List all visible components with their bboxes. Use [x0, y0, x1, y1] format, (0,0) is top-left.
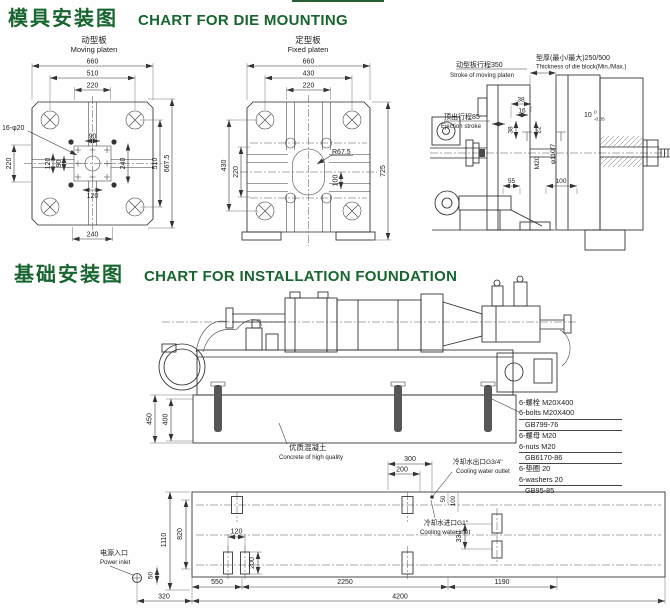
mp-dim-510: 510	[87, 71, 99, 78]
mp-dim-height: 667.5	[164, 155, 171, 173]
pl-dim-100-outlet: 100	[450, 495, 457, 506]
parts-nut-en: 6-nuts M20	[519, 442, 622, 453]
sec-stroke-zh: 动型板行程350	[456, 60, 503, 69]
parts-bolt-std: GB799-76	[519, 420, 622, 431]
mp-dim-510-right: 510	[152, 158, 159, 170]
fp-dim-100: 100	[333, 175, 340, 187]
mp-dim-240-right: 240	[120, 158, 127, 170]
pl-dim-820: 820	[177, 528, 184, 540]
sec-ejection-zh: 顶出行程85	[444, 112, 480, 121]
mp-dim-120-left: 120	[45, 158, 52, 170]
pl-dim-1110: 1110	[161, 533, 168, 548]
anchor-bolts	[211, 382, 495, 432]
concrete-slab	[193, 395, 516, 443]
el-dim-450: 450	[147, 413, 154, 425]
sec-dim-100: 100	[555, 178, 566, 185]
die-mounting-title-en: CHART FOR DIE MOUNTING	[138, 12, 348, 29]
pl-inlet-zh: 冷却水进口G1"	[424, 518, 469, 527]
pl-dim-1190: 1190	[494, 579, 509, 586]
mp-dim-90-center: 90	[89, 134, 97, 141]
anchor-parts-list: 6-螺栓 M20X400 6-bolts M20X400 GB799-76 6-…	[519, 398, 622, 497]
mp-hole-callout: 16-φ20	[2, 125, 25, 132]
parts-washer-zh: 6-垫圈 20	[519, 464, 622, 474]
sec-dim-22: 22	[536, 126, 543, 134]
fixed-platen-label-en: Fixed platen	[263, 46, 353, 55]
sec-dim-10-tol-upper: 0	[594, 110, 597, 115]
sec-dim-55: 55	[508, 178, 516, 185]
pl-dim-200: 200	[249, 557, 256, 569]
fp-dim-430: 430	[303, 71, 315, 78]
pl-power-zh: 电源入口	[100, 548, 128, 557]
sec-ejection-en: Ejection stroke	[441, 123, 482, 130]
pl-dim-550: 550	[211, 579, 223, 586]
fp-dim-220-left: 220	[233, 166, 240, 178]
sec-dim-16: 16	[518, 108, 526, 115]
sec-dim-10: 10	[584, 112, 592, 119]
moving-platen-label-en: Moving platen	[49, 46, 139, 55]
installation-foundation-title-zh: 基础安装图	[14, 258, 124, 287]
sec-dim-38b: 38	[508, 126, 515, 134]
die-mounting-title: 模具安装图 CHART FOR DIE MOUNTING	[8, 2, 348, 31]
fixed-platen-label: 定型板 Fixed platen	[263, 36, 353, 54]
sec-thickness-en: Thickness of die block(Min./Max.)	[536, 64, 626, 71]
mp-dim-660: 660	[87, 59, 99, 66]
parts-bolt-zh: 6-螺栓 M20X400	[519, 398, 622, 408]
pl-dim-120: 120	[231, 529, 243, 536]
parts-washer-std: GB95-85	[519, 486, 622, 496]
pl-dim-320: 320	[158, 594, 170, 601]
fp-radius-callout: R67.5	[332, 149, 351, 156]
manual-page: 660 510 220 16-φ20 220 120 90 90 120 240…	[0, 0, 670, 614]
fp-dim-220: 220	[303, 83, 315, 90]
parts-nut-std: GB6170-86	[519, 453, 622, 464]
fp-dim-430-left: 430	[221, 160, 228, 172]
mp-dim-220-left: 220	[6, 158, 13, 170]
fp-dim-725: 725	[380, 165, 387, 177]
mp-dim-120-bottom: 120	[87, 193, 99, 200]
sec-dim-m20: M20	[534, 156, 541, 169]
sec-dim-dia110: φ110f7	[550, 144, 557, 165]
installation-foundation-title: 基础安装图 CHART FOR INSTALLATION FOUNDATION	[14, 258, 457, 287]
moving-platen-drawing: 660 510 220 16-φ20 220 120 90 90 120 240…	[2, 59, 175, 242]
parts-washer-en: 6-washers 20	[519, 475, 622, 486]
mp-dim-90-left: 90	[56, 160, 63, 168]
installation-foundation-title-en: CHART FOR INSTALLATION FOUNDATION	[144, 268, 457, 285]
die-mounting-title-zh: 模具安装图	[8, 2, 118, 31]
pl-outlet-en: Cooling water outlet	[456, 468, 510, 475]
technical-drawing-layer: 660 510 220 16-φ20 220 120 90 90 120 240…	[0, 0, 670, 614]
sec-dim-10-tol-lower: -0.05	[594, 117, 605, 122]
el-concrete-zh: 优质混凝土	[289, 442, 327, 452]
el-concrete-en: Concrete of high quality	[279, 454, 344, 461]
parts-nut-zh: 6-螺母 M20	[519, 431, 622, 441]
pl-dim-4200: 4200	[392, 594, 408, 601]
sec-dim-38a: 38	[517, 97, 525, 104]
pl-outlet-zh: 冷却水出口G3/4"	[453, 457, 503, 466]
die-section-drawing: 动型板行程350 Stroke of moving platen 型厚(最小/最…	[430, 53, 670, 250]
pl-dim-330: 330	[456, 531, 463, 543]
power-inlet-symbol	[133, 574, 142, 583]
fixed-platen-drawing: 660 430 220 430 220 725 R67.5 100	[221, 59, 391, 247]
fp-dim-660: 660	[303, 59, 315, 66]
mp-dim-220-top: 220	[87, 83, 99, 90]
pl-dim-50-outlet: 50	[440, 495, 447, 502]
pl-power-en: Power inlet	[100, 559, 130, 566]
sec-stroke-en: Stroke of moving platen	[450, 72, 514, 79]
machine-elevation-drawing: 450 400 优质混凝土 Concrete of high quality	[147, 276, 579, 461]
pl-dim-50: 50	[148, 572, 155, 580]
el-dim-400: 400	[163, 414, 170, 426]
pl-dim-2250: 2250	[337, 579, 353, 586]
mp-dim-240-bottom: 240	[87, 232, 99, 239]
pl-dim-300: 300	[404, 456, 416, 463]
moving-platen-label: 动型板 Moving platen	[49, 36, 139, 54]
sec-thickness-zh: 型厚(最小/最大)250/500	[536, 53, 610, 62]
parts-bolt-en: 6-bolts M20X400	[519, 408, 622, 419]
pl-dim-200-top: 200	[396, 467, 408, 474]
